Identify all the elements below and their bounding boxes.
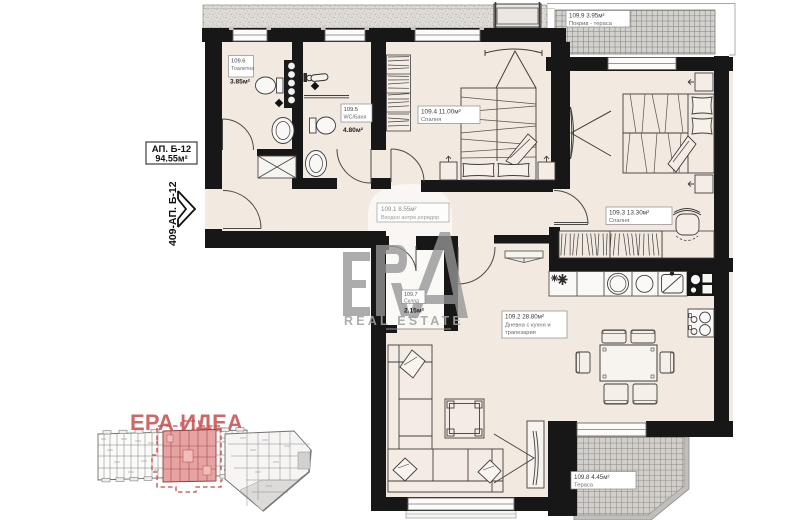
svg-text:Склад: Склад: [404, 299, 419, 305]
svg-text:109.7: 109.7: [404, 292, 418, 298]
svg-text:109.6: 109.6: [231, 59, 246, 65]
svg-text:109.1 8.55м²: 109.1 8.55м²: [381, 206, 417, 213]
svg-text:109.3 13.30м²: 109.3 13.30м²: [609, 210, 649, 217]
svg-text:94.55м²: 94.55м²: [155, 154, 187, 164]
svg-text:Тоалетна: Тоалетна: [231, 66, 254, 72]
svg-text:109.5: 109.5: [344, 107, 359, 113]
svg-text:трапезария: трапезария: [505, 330, 536, 336]
svg-text:109.8 4.45м²: 109.8 4.45м²: [574, 474, 610, 481]
svg-text:Спалня: Спалня: [421, 117, 441, 123]
svg-text:2.15м²: 2.15м²: [404, 308, 425, 315]
svg-text:REAL ESTATE: REAL ESTATE: [344, 314, 464, 328]
svg-text:Дневна с кухня и: Дневна с кухня и: [505, 323, 551, 329]
svg-text:WC/Баня: WC/Баня: [344, 115, 367, 121]
svg-text:Спалня: Спалня: [609, 218, 629, 224]
svg-text:109.9 3.95м²: 109.9 3.95м²: [569, 13, 605, 20]
svg-text:409-АП. Б-12: 409-АП. Б-12: [167, 181, 179, 246]
svg-text:4.80м²: 4.80м²: [343, 127, 364, 134]
svg-text:Тераса: Тераса: [574, 483, 594, 489]
svg-text:109.2 28.80м²: 109.2 28.80м²: [505, 314, 544, 321]
svg-text:Покрив - тераса: Покрив - тераса: [569, 21, 613, 27]
svg-text:109.4 11.00м²: 109.4 11.00м²: [421, 109, 461, 116]
svg-text:Входно антре,коридор: Входно антре,коридор: [381, 215, 439, 221]
svg-text:3.85м²: 3.85м²: [230, 79, 251, 86]
